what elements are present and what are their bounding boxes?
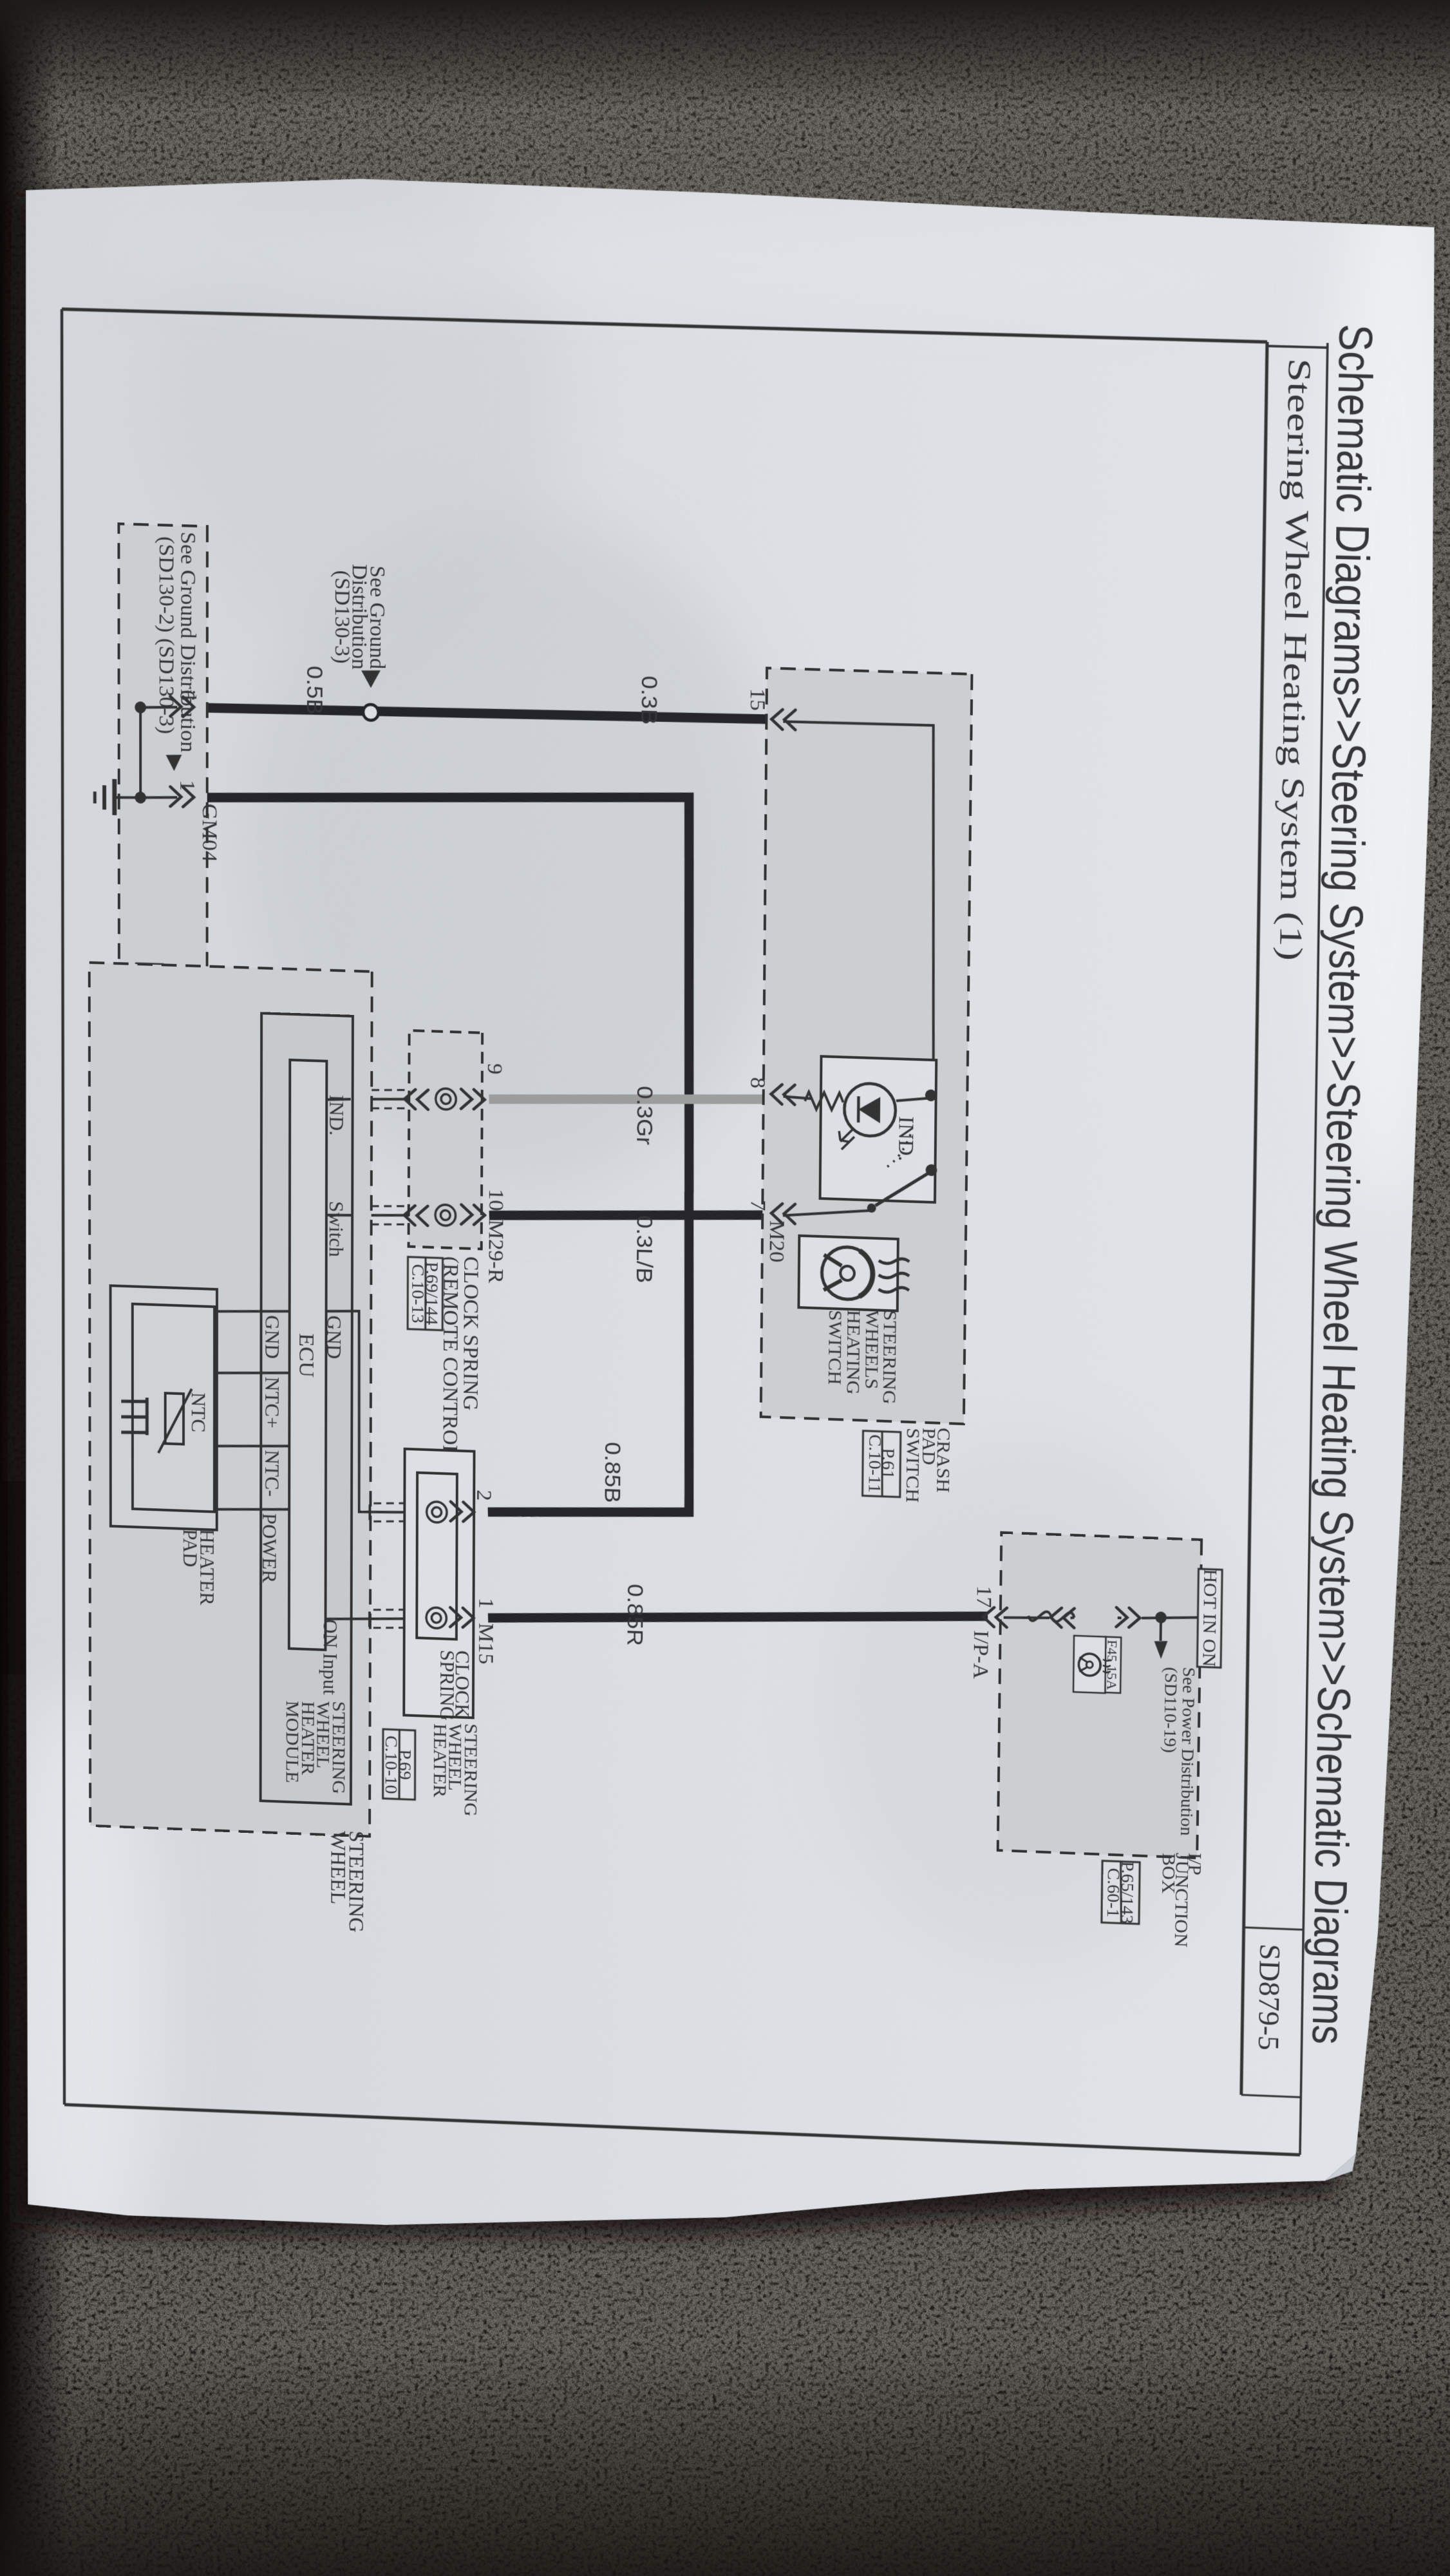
- svg-text:C.10-10: C.10-10: [381, 1735, 401, 1794]
- svg-text:15: 15: [746, 688, 770, 711]
- svg-text:NTC-: NTC-: [261, 1450, 282, 1497]
- svg-text:Switch: Switch: [325, 1200, 347, 1257]
- svg-text:7: 7: [746, 1199, 771, 1211]
- svg-text:M29-R: M29-R: [484, 1219, 509, 1284]
- svg-text:C.10-13: C.10-13: [408, 1264, 428, 1323]
- svg-text:1: 1: [176, 780, 200, 792]
- svg-text:CLOCK SPRING: CLOCK SPRING: [458, 1256, 482, 1411]
- svg-text:9: 9: [483, 1063, 507, 1075]
- svg-text:NTC: NTC: [187, 1392, 209, 1432]
- svg-text:0.85R: 0.85R: [623, 1584, 648, 1647]
- svg-text:ON Input: ON Input: [319, 1619, 341, 1696]
- svg-text:(SD110-19): (SD110-19): [1160, 1667, 1181, 1753]
- svg-text:M15: M15: [474, 1623, 498, 1665]
- svg-text:WHEEL: WHEEL: [326, 1830, 349, 1905]
- svg-text:6: 6: [176, 689, 200, 701]
- svg-text:HOT IN ON: HOT IN ON: [1199, 1569, 1221, 1667]
- svg-text:17: 17: [972, 1586, 997, 1609]
- svg-text:0.85B: 0.85B: [600, 1441, 626, 1503]
- svg-text:(SD130-3): (SD130-3): [330, 570, 353, 664]
- svg-text:NTC+: NTC+: [261, 1376, 283, 1428]
- svg-text:SPRING: SPRING: [436, 1649, 458, 1721]
- svg-text:PAD: PAD: [179, 1529, 200, 1567]
- svg-text:HEATER: HEATER: [429, 1723, 451, 1798]
- svg-text:WHEELS: WHEELS: [861, 1310, 883, 1390]
- svg-text:8: 8: [746, 1077, 770, 1089]
- svg-text:GND: GND: [261, 1315, 283, 1359]
- svg-text:GM04: GM04: [198, 803, 221, 862]
- svg-text:(SD130-2) (SD130-3): (SD130-2) (SD130-3): [155, 536, 179, 734]
- svg-text:1: 1: [475, 1597, 498, 1609]
- svg-text:2: 2: [472, 1490, 496, 1501]
- svg-text:POWER: POWER: [258, 1513, 279, 1584]
- svg-text:IND.: IND.: [894, 1116, 918, 1162]
- svg-text:SD879-5: SD879-5: [1252, 1943, 1285, 2051]
- svg-text:MODULE: MODULE: [282, 1700, 303, 1783]
- svg-text:0.3Gr: 0.3Gr: [632, 1086, 658, 1146]
- svg-text:See Ground Distribution: See Ground Distribution: [176, 531, 201, 753]
- svg-text:ECU: ECU: [295, 1333, 319, 1378]
- svg-text:0.3L/B: 0.3L/B: [632, 1215, 657, 1284]
- svg-text:SWITCH: SWITCH: [902, 1428, 924, 1503]
- svg-text:0.5B: 0.5B: [302, 665, 328, 715]
- svg-text:C.60-1: C.60-1: [1103, 1868, 1124, 1918]
- svg-text:10: 10: [484, 1188, 509, 1211]
- svg-text:M20: M20: [765, 1220, 789, 1263]
- svg-text:BOX: BOX: [1158, 1853, 1180, 1895]
- svg-text:SWITCH: SWITCH: [824, 1310, 846, 1385]
- svg-text:I/P-A: I/P-A: [969, 1630, 993, 1680]
- svg-text:0.3B: 0.3B: [637, 676, 663, 725]
- svg-text:GND: GND: [323, 1315, 345, 1359]
- svg-text:C.10-11: C.10-11: [865, 1434, 885, 1493]
